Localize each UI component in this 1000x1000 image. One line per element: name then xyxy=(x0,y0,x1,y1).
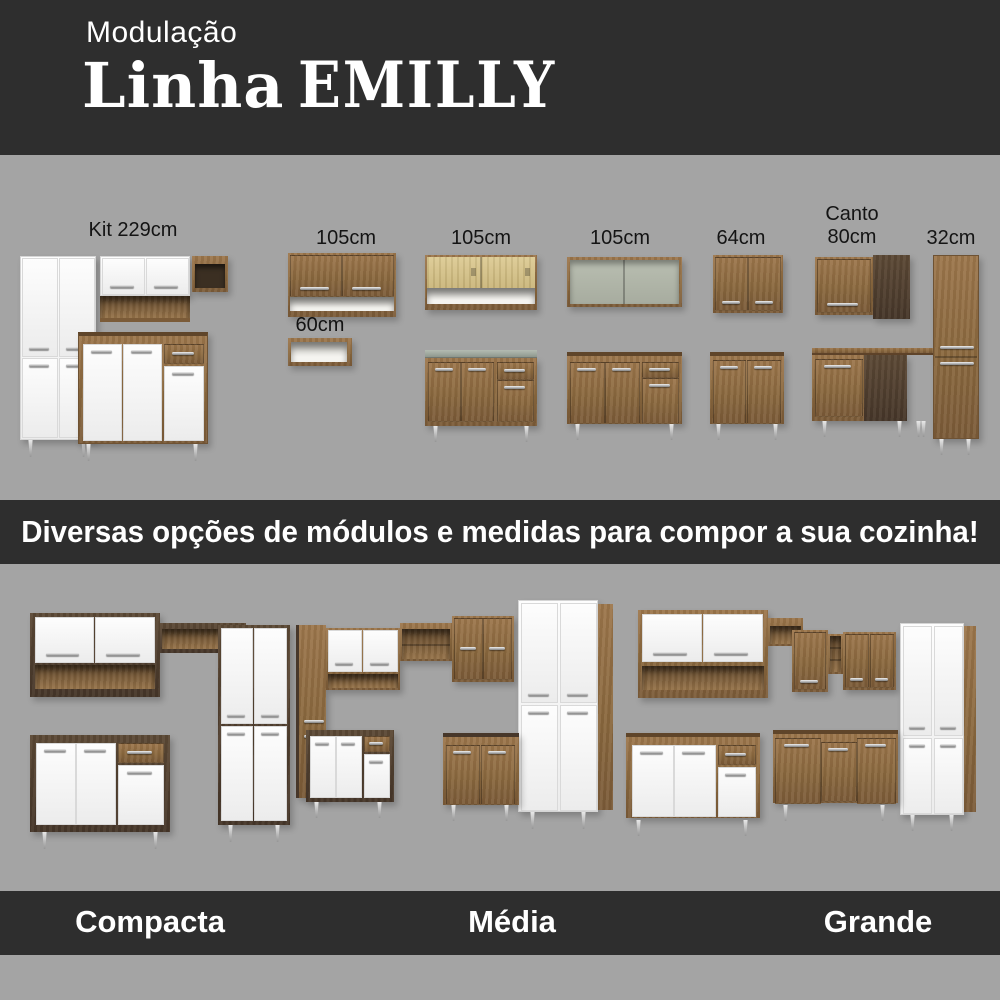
kitchen-media xyxy=(293,598,623,866)
cabinet-door xyxy=(605,362,640,424)
module-corner-80-wall xyxy=(815,255,910,319)
drawer xyxy=(364,736,390,752)
label-tall-32: 32cm xyxy=(927,227,976,250)
cabinet-door xyxy=(934,626,963,736)
tall-cabinet xyxy=(518,600,598,812)
legs xyxy=(822,421,902,437)
label-kit-229: Kit 229cm xyxy=(89,219,178,242)
door-pull xyxy=(471,268,476,276)
cabinet-door xyxy=(22,358,58,438)
open-shelf xyxy=(328,674,398,688)
tall-cabinet xyxy=(900,623,964,815)
cabinet-door xyxy=(642,378,679,424)
door-seam xyxy=(480,257,482,288)
cabinet-door xyxy=(845,634,869,688)
label-wall-64: 64cm xyxy=(717,227,766,250)
divider xyxy=(623,260,625,304)
legs xyxy=(433,426,529,442)
shelf-divider xyxy=(402,644,450,646)
cabinet-door xyxy=(718,767,756,817)
cabinet-door xyxy=(775,738,821,804)
cabinet-door xyxy=(821,742,857,802)
legs xyxy=(314,802,382,818)
title-linha: Linha xyxy=(82,49,284,122)
cabinet-door xyxy=(857,738,896,804)
legs xyxy=(916,421,926,437)
side-panel xyxy=(864,355,907,421)
cabinet-door xyxy=(642,614,702,662)
shelf-interior xyxy=(830,636,841,672)
shelf-divider xyxy=(830,647,841,649)
legs xyxy=(451,805,509,821)
wood-wall-cabinet xyxy=(792,630,828,692)
wall-cabinet xyxy=(326,628,400,690)
footer-label-compacta: Compacta xyxy=(75,904,225,940)
label-wall-105-open: 105cm xyxy=(590,227,650,250)
open-shelf xyxy=(427,288,535,304)
kitchen-compacta xyxy=(28,605,290,867)
legs xyxy=(86,444,198,461)
base-cabinet xyxy=(306,730,394,802)
wood-base-cabinet xyxy=(443,733,519,805)
cabinet-door xyxy=(747,360,781,424)
module-base-105-sink xyxy=(425,350,537,442)
cabinet-door xyxy=(336,736,362,798)
cabinet-door xyxy=(310,736,336,798)
cabinet-door xyxy=(221,726,253,821)
kitchen-grande xyxy=(618,598,990,870)
cabinet-body xyxy=(710,352,784,424)
cabinet-door xyxy=(521,705,558,811)
header-band: Modulação LinhaEMILLY xyxy=(0,0,1000,155)
banner-text: Diversas opções de módulos e medidas par… xyxy=(21,514,978,550)
wood-wall-cabinet xyxy=(452,616,514,682)
cabinet-door xyxy=(483,618,512,680)
corner-open-shelves xyxy=(828,634,843,674)
cabinet-door xyxy=(22,258,58,357)
banner-band: Diversas opções de módulos e medidas par… xyxy=(0,500,1000,564)
module-tall-32 xyxy=(933,255,979,457)
bridge-shelf xyxy=(400,623,452,661)
footer-label-grande: Grande xyxy=(824,904,933,940)
label-wall-105-sliding: 105cm xyxy=(451,227,511,250)
legs xyxy=(42,832,158,849)
side-panel xyxy=(873,255,910,319)
side-panel xyxy=(598,604,613,810)
cabinet-body xyxy=(933,255,979,439)
handle xyxy=(304,720,324,723)
cabinet-door xyxy=(870,634,894,688)
module-wall-64 xyxy=(713,255,783,313)
cabinet-door xyxy=(903,626,932,736)
legs xyxy=(530,812,586,829)
legs xyxy=(716,424,778,440)
kit-corner-shelf xyxy=(192,256,228,292)
module-base-64 xyxy=(710,352,784,442)
drawer xyxy=(164,344,204,364)
module-wall-105-doors xyxy=(288,253,396,317)
base-cabinet xyxy=(626,733,760,818)
cabinet-door xyxy=(342,255,394,297)
cabinet-door xyxy=(674,745,716,817)
cabinet-door xyxy=(164,366,204,441)
drawer xyxy=(118,743,164,763)
cabinet-door xyxy=(903,738,932,814)
cabinet-door xyxy=(461,362,494,422)
open-shelf xyxy=(642,666,764,690)
side-panel xyxy=(964,626,976,812)
cabinet-door xyxy=(713,360,746,424)
drawer xyxy=(497,362,534,380)
cabinet-door xyxy=(428,362,461,422)
label-corner-80: Canto 80cm xyxy=(825,203,878,249)
cabinet-door xyxy=(364,754,390,798)
cabinet-door xyxy=(481,745,515,805)
legs xyxy=(939,439,971,455)
cabinet-door xyxy=(76,743,116,825)
label-corner-80-line1: Canto xyxy=(825,203,878,226)
footer-label-media: Média xyxy=(468,904,556,940)
cabinet-door xyxy=(560,705,597,811)
label-corner-80-line2: 80cm xyxy=(825,226,878,249)
module-niche-60 xyxy=(288,338,352,366)
cabinet-door xyxy=(632,745,674,817)
legs xyxy=(783,805,885,821)
footer-band: Compacta Média Grande xyxy=(0,891,1000,955)
module-corner-80-base xyxy=(812,348,937,442)
cabinet-body xyxy=(815,257,873,315)
legs xyxy=(575,424,674,440)
cabinet-door xyxy=(328,630,362,672)
cabinet-door xyxy=(497,380,534,422)
handle xyxy=(940,362,974,365)
module-wall-105-sliding xyxy=(425,255,537,310)
wall-cabinet xyxy=(638,610,768,698)
cabinet-door xyxy=(95,617,155,663)
cabinet-door xyxy=(934,738,963,814)
cabinet-door xyxy=(118,765,164,825)
cabinet-door xyxy=(521,603,558,703)
cabinet-body xyxy=(425,358,537,426)
open-shelf xyxy=(290,297,394,311)
cabinet-door xyxy=(363,630,398,672)
cabinet-door xyxy=(794,632,826,690)
tall-cabinet xyxy=(218,625,290,825)
door-pull xyxy=(525,268,530,276)
wall-cabinet xyxy=(30,613,160,697)
sink-countertop xyxy=(425,350,537,358)
legs xyxy=(228,825,280,842)
cabinet-door xyxy=(36,743,76,825)
wood-wall-cabinet xyxy=(843,632,896,690)
shelf-divider xyxy=(830,659,841,661)
cabinet-door xyxy=(146,258,189,295)
kit-open-shelf xyxy=(100,296,190,322)
legs xyxy=(910,815,954,831)
countertop xyxy=(812,348,937,355)
label-niche-60: 60cm xyxy=(296,314,345,337)
shelf-interior xyxy=(195,264,225,288)
title-brand-emilly: EMILLY xyxy=(298,48,556,123)
kit-base-cabinet xyxy=(78,332,208,444)
cabinet-door xyxy=(35,617,94,663)
corner-base-cabinet xyxy=(773,730,898,803)
open-shelf xyxy=(35,665,155,689)
cabinet-door xyxy=(815,359,863,417)
cabinet-door xyxy=(290,255,342,297)
cabinet-body xyxy=(567,352,682,424)
base-cabinet xyxy=(30,735,170,832)
cabinet-door xyxy=(446,745,480,805)
cabinet-door xyxy=(102,258,145,295)
cabinet-door xyxy=(254,628,287,724)
page-title: LinhaEMILLY xyxy=(82,48,592,123)
cabinet-door xyxy=(221,628,253,724)
cabinet-door xyxy=(817,259,871,313)
module-kit-229 xyxy=(20,256,210,461)
drawer xyxy=(642,362,679,378)
header-kicker: Modulação xyxy=(86,16,237,50)
legs xyxy=(636,820,748,836)
cabinet-body xyxy=(812,355,907,421)
cabinet-door xyxy=(254,726,287,821)
divider xyxy=(935,356,977,358)
niche-interior xyxy=(291,342,347,362)
label-wall-105-doors: 105cm xyxy=(316,227,376,250)
handle xyxy=(940,346,974,349)
cabinet-door xyxy=(703,614,763,662)
kit-overhead-cabinet xyxy=(100,256,190,296)
cabinet-door xyxy=(715,257,748,311)
page: Modulação LinhaEMILLY Kit 229cm 105cm 60… xyxy=(0,0,1000,1000)
cabinet-door xyxy=(83,344,122,441)
module-base-105 xyxy=(567,352,682,442)
cabinet-door xyxy=(454,618,483,680)
cabinet-door xyxy=(570,362,605,424)
drawer xyxy=(718,745,756,765)
cabinet-door xyxy=(560,603,597,703)
cabinet-door xyxy=(748,257,781,311)
module-wall-105-open xyxy=(567,257,682,307)
cabinet-door xyxy=(123,344,162,441)
